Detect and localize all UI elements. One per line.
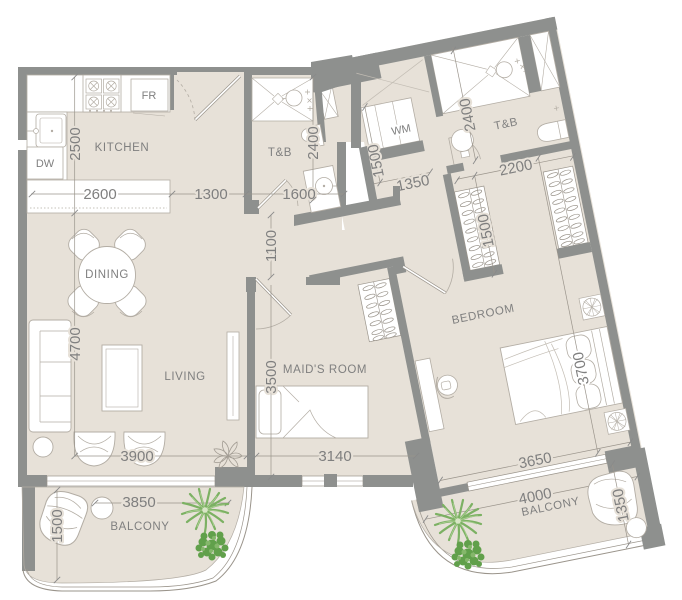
svg-text:3500: 3500 — [263, 360, 280, 393]
svg-text:LIVING: LIVING — [164, 371, 205, 383]
svg-text:2400: 2400 — [305, 126, 322, 159]
svg-text:2500: 2500 — [67, 127, 84, 160]
svg-text:DINING: DINING — [85, 269, 129, 281]
svg-text:FR: FR — [142, 90, 157, 102]
svg-text:3140: 3140 — [318, 448, 351, 465]
svg-text:1600: 1600 — [282, 186, 315, 203]
svg-text:4700: 4700 — [67, 327, 84, 360]
svg-text:KITCHEN: KITCHEN — [95, 142, 150, 154]
svg-text:MAID'S ROOM: MAID'S ROOM — [283, 364, 367, 376]
svg-text:T&B: T&B — [268, 147, 292, 159]
svg-text:3900: 3900 — [120, 448, 153, 465]
svg-text:2600: 2600 — [83, 186, 116, 203]
svg-text:DW: DW — [36, 158, 55, 170]
svg-text:1500: 1500 — [49, 509, 66, 542]
svg-text:1100: 1100 — [263, 230, 280, 262]
svg-text:1300: 1300 — [194, 186, 227, 203]
svg-text:BALCONY: BALCONY — [110, 521, 169, 533]
svg-text:3850: 3850 — [122, 494, 155, 511]
